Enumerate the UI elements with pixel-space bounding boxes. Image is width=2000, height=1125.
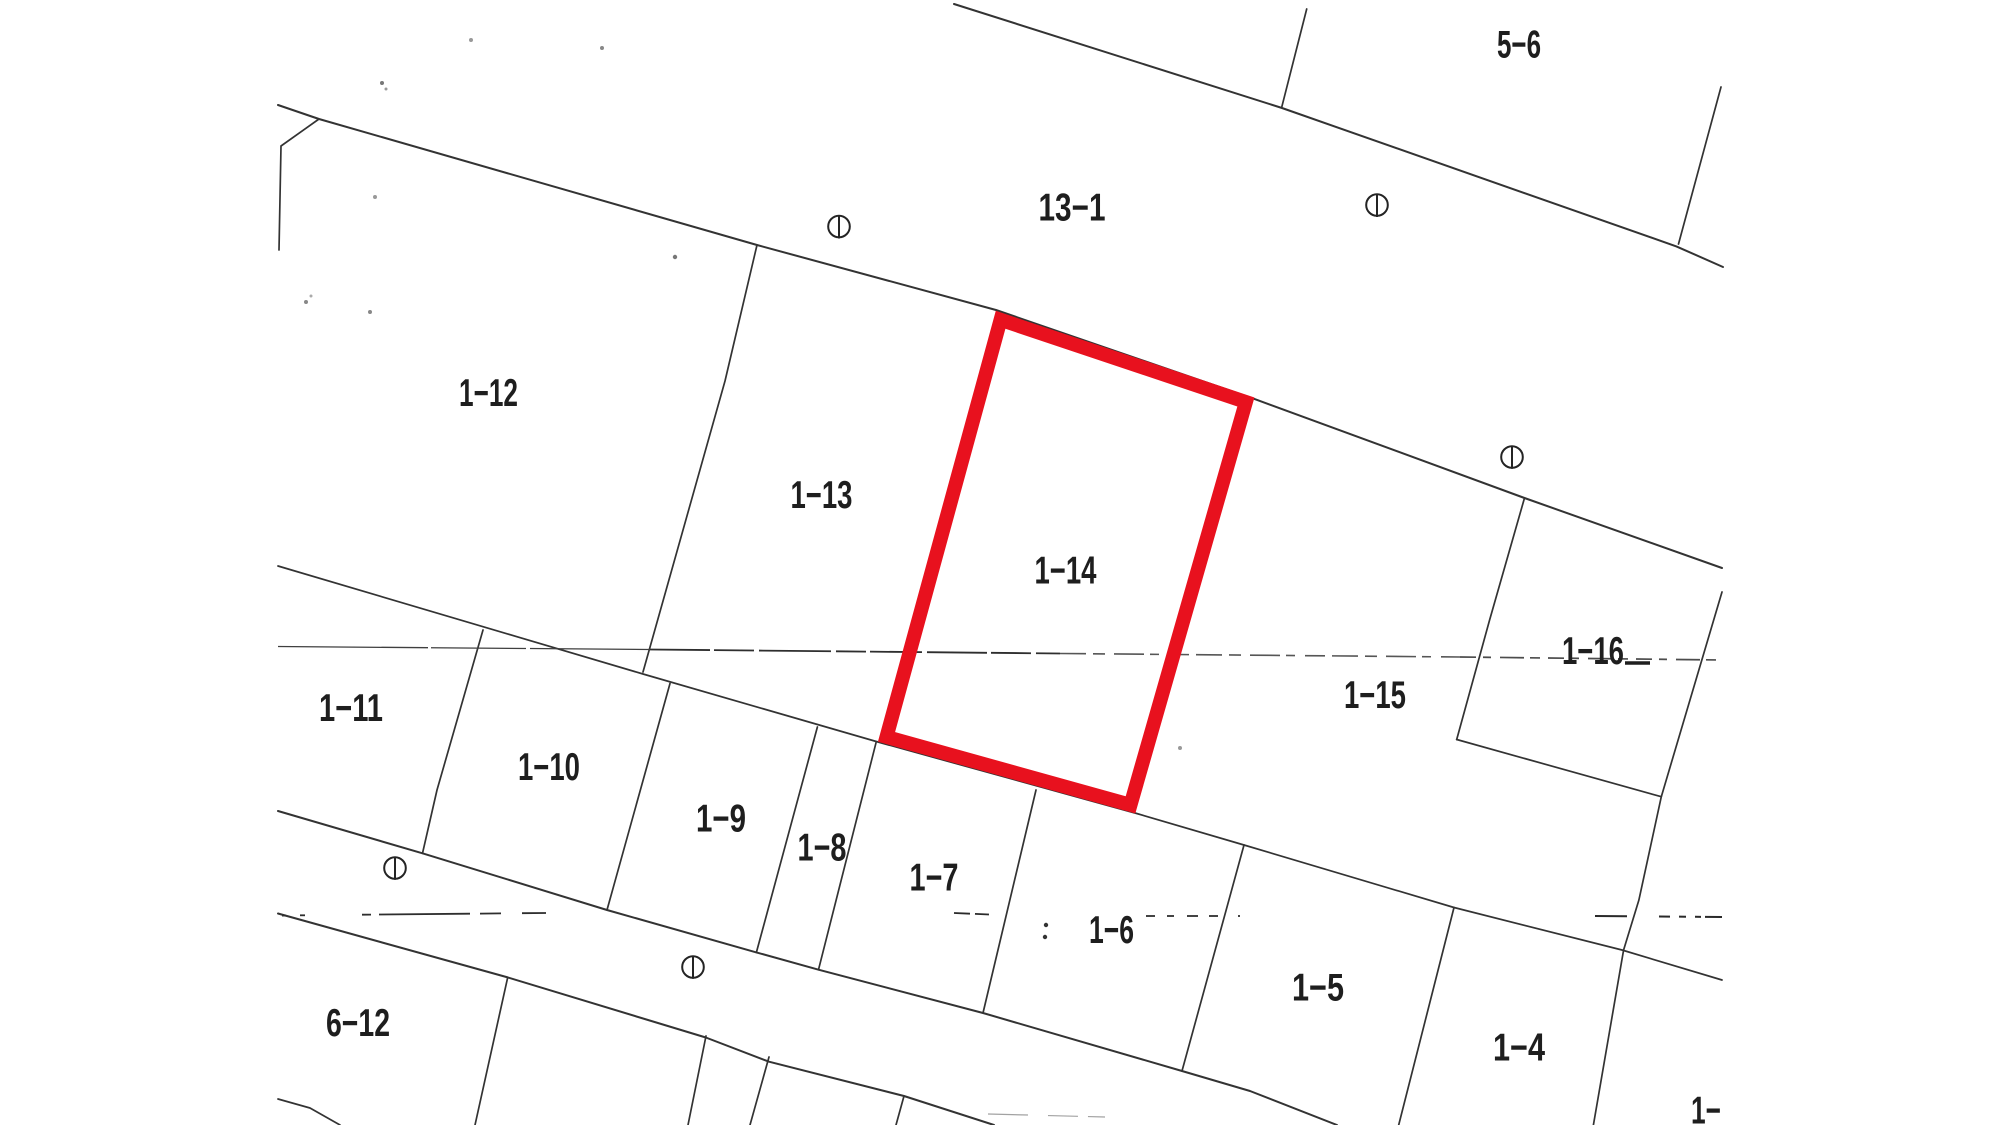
svg-text:13−1: 13−1 [1039, 187, 1106, 230]
svg-text:1−: 1− [1691, 1090, 1721, 1125]
svg-text:1−12: 1−12 [459, 372, 518, 415]
svg-text:1−13: 1−13 [791, 474, 853, 517]
svg-text:6−12: 6−12 [326, 1002, 390, 1045]
svg-text:1−14: 1−14 [1035, 550, 1097, 593]
svg-text:1−7: 1−7 [910, 857, 959, 900]
svg-text:1−8: 1−8 [798, 827, 847, 870]
svg-text:1−10: 1−10 [518, 746, 580, 789]
svg-text:1−15: 1−15 [1344, 674, 1406, 717]
svg-text:1−6: 1−6 [1089, 909, 1134, 952]
svg-text:1−5: 1−5 [1292, 967, 1344, 1010]
svg-text:1−4: 1−4 [1493, 1027, 1545, 1070]
svg-text:1−11: 1−11 [319, 687, 383, 730]
svg-text:1−9: 1−9 [696, 798, 746, 841]
svg-text:1−16: 1−16 [1562, 630, 1624, 673]
svg-text:5−6: 5−6 [1497, 24, 1541, 67]
